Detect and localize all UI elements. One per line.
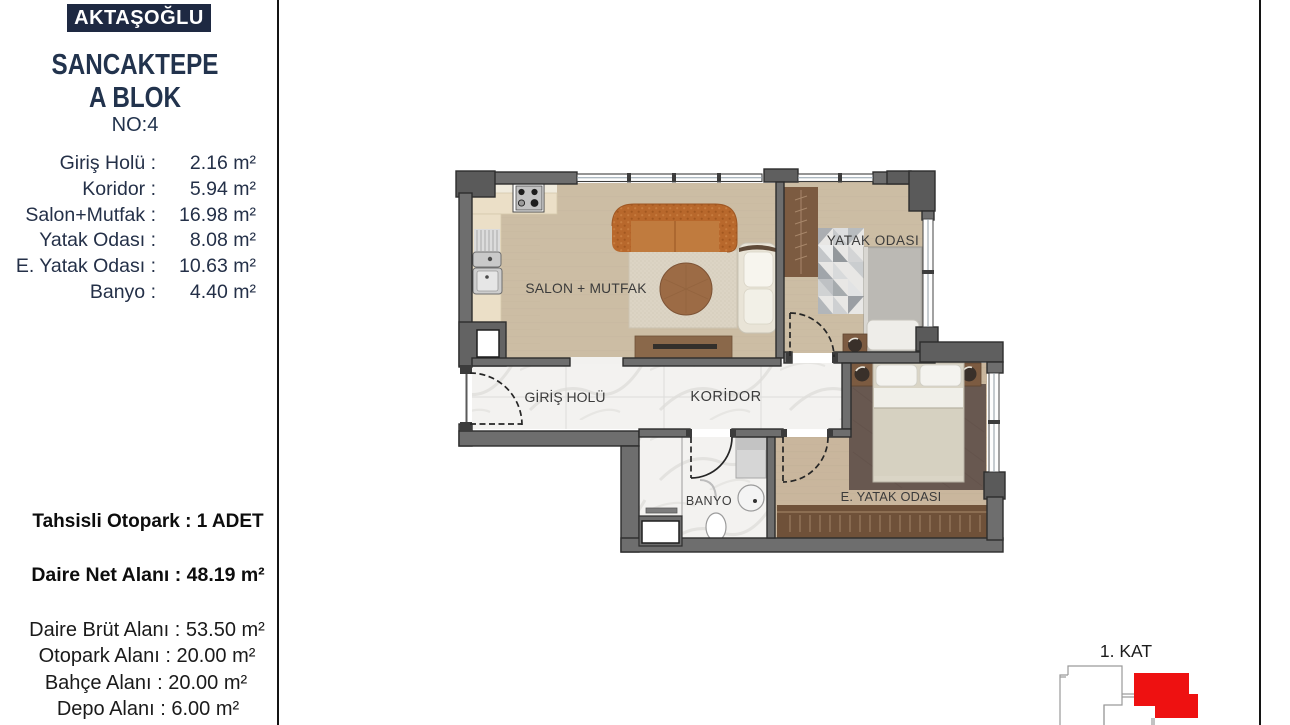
svg-text:GİRİŞ HOLÜ: GİRİŞ HOLÜ [525,388,606,405]
svg-text:KORİDOR: KORİDOR [690,387,761,405]
svg-text:SALON + MUTFAK: SALON + MUTFAK [525,281,647,296]
svg-text:YATAK ODASI: YATAK ODASI [827,233,920,248]
svg-text:1. KAT: 1. KAT [1100,641,1153,661]
svg-text:BANYO: BANYO [686,494,732,508]
svg-text:E. YATAK ODASI: E. YATAK ODASI [841,489,942,504]
